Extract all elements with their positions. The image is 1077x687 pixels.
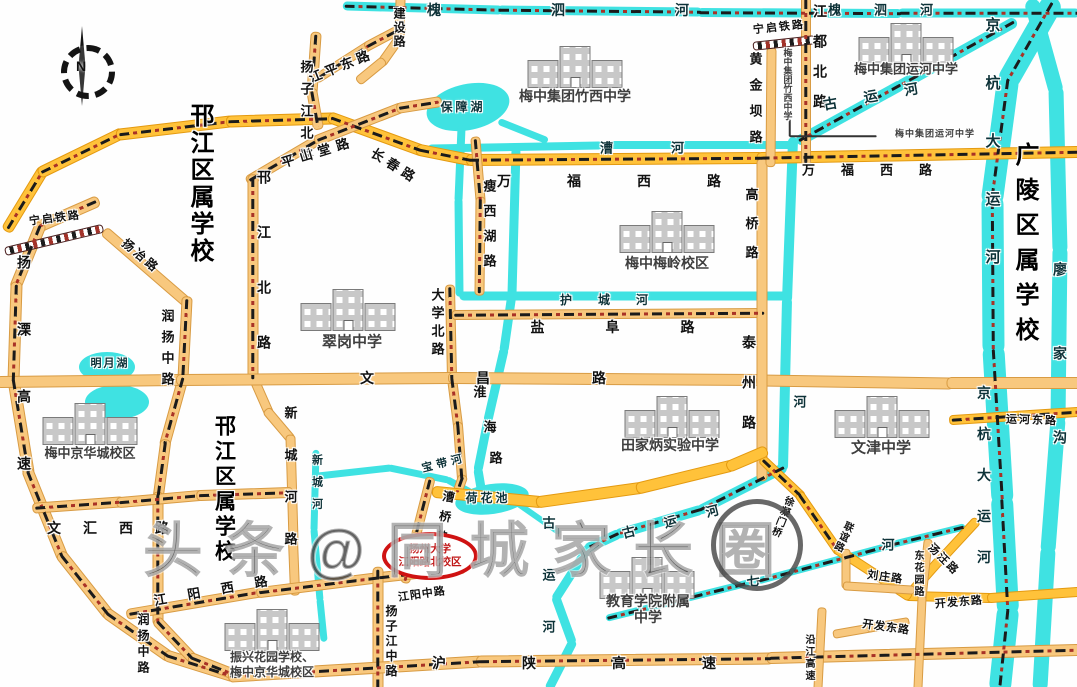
watermark-circle-icon bbox=[711, 499, 803, 591]
school-icon-yunhe bbox=[859, 23, 954, 65]
road-label-yanjiang: 沿江高速 bbox=[803, 634, 813, 682]
donghuayuan-road bbox=[913, 595, 926, 687]
compass-north-label: N bbox=[76, 58, 86, 74]
region-label-guangling: 广陵区属学校 bbox=[1012, 142, 1036, 352]
road-label-gaoqiao: 高桥路 bbox=[745, 188, 758, 275]
school-tower bbox=[891, 23, 922, 65]
school-label-jinghuacheng: 梅中京华城校区 bbox=[44, 447, 135, 460]
school-tower bbox=[652, 211, 683, 253]
wenchang-road bbox=[756, 374, 954, 389]
road-label-yangzijiangzhong: 扬子江中路 bbox=[385, 605, 397, 680]
school-wing-left bbox=[43, 417, 74, 445]
region-label-hanjiang-1: 邗江区属学校 bbox=[187, 103, 211, 265]
road-label-wenchang: 文昌路 bbox=[360, 371, 708, 385]
lake-label-baozhang: 保障湖 bbox=[440, 101, 485, 113]
road-label-kaifadong-e: 开发东路 bbox=[935, 595, 984, 610]
school-wing-right bbox=[107, 417, 138, 445]
school-tower bbox=[560, 46, 591, 88]
school-tower bbox=[867, 396, 898, 438]
huangjinba-road bbox=[765, 47, 776, 167]
yangzhou-school-district-map: N 扬州大学 江阳路北校区 头条@同城家长圈 邗江区属学校邗江区属学校广陵区属学… bbox=[0, 0, 1077, 687]
shouxihu-water-east bbox=[507, 147, 520, 297]
road-label-donghuayuan: 东花园路 bbox=[912, 550, 922, 598]
river-label-qilihe-2: 河 bbox=[881, 539, 894, 552]
school-label-yunhe-small: 梅中集团运河中学 bbox=[895, 130, 975, 139]
river-label-guyunhe-n: 河 bbox=[793, 396, 806, 409]
river-label-guyunhe-ne: 古运河 bbox=[822, 76, 946, 111]
liaojiagou-river bbox=[1032, 545, 1055, 687]
road-label-daxuebei: 大学北路 bbox=[431, 288, 444, 360]
school-label-wenjin: 文津中学 bbox=[851, 441, 911, 456]
river-label-huaisi-2: 槐泗河 bbox=[828, 4, 966, 17]
baozhanghu-outlet bbox=[497, 118, 548, 144]
lake-label-mingyue: 明月湖 bbox=[91, 359, 130, 370]
school-wing-left bbox=[225, 623, 256, 651]
school-tower bbox=[75, 403, 106, 445]
liaojiagou-river bbox=[1048, 85, 1067, 254]
river-label-jinghang-1: 京杭大运河 bbox=[985, 17, 1000, 307]
school-icon-meiling bbox=[620, 211, 715, 253]
road-label-runyangzhong-1: 润扬中路 bbox=[161, 309, 174, 393]
school-label-cuigang: 翠岗中学 bbox=[322, 335, 382, 350]
school-wing-left bbox=[528, 60, 559, 88]
school-wing-left bbox=[301, 303, 332, 331]
school-label-tianjiabing: 田家炳实验中学 bbox=[621, 438, 719, 452]
road-label-yunhedong: 运河东路 bbox=[1006, 415, 1058, 428]
school-wing-left bbox=[625, 410, 656, 438]
school-label-meiling: 梅中梅岭校区 bbox=[625, 256, 709, 270]
river-label-caohe: 漕河 bbox=[600, 142, 742, 155]
school-wing-right bbox=[592, 60, 623, 88]
ningqi-railway-west bbox=[4, 224, 104, 256]
changchun-wanfuxi-road-boundary bbox=[41, 132, 122, 173]
school-label-zhenxing-2: 梅中京华城校区 bbox=[230, 666, 314, 678]
school-wing-right bbox=[365, 303, 396, 331]
river-label-liaojiagou: 廖家沟 bbox=[1053, 262, 1067, 514]
school-wing-right bbox=[899, 410, 930, 438]
school-label-zhuxi-small: 梅中集团竹西中学 bbox=[783, 48, 792, 120]
school-label-jiaoyuxueyuan-2: 中学 bbox=[634, 610, 662, 624]
road-label-wanfuxi-e: 万福西路 bbox=[802, 164, 958, 177]
river-label-hucheng: 护城河 bbox=[560, 294, 674, 306]
road-label-shouxihu: 瘦西湖路 bbox=[483, 179, 496, 279]
school-tower bbox=[333, 289, 364, 331]
leader-line bbox=[790, 135, 877, 137]
road-label-wanfuxi-w: 万福西路 bbox=[497, 174, 777, 188]
school-icon-tianjiabing bbox=[625, 396, 720, 438]
road-label-huaihai-1: 淮 bbox=[473, 386, 486, 399]
school-label-yunhe: 梅中集团运河中学 bbox=[854, 63, 958, 76]
road-label-yanfu: 盐阜路 bbox=[531, 320, 756, 334]
school-wing-right bbox=[289, 623, 320, 651]
nantong-road bbox=[635, 459, 736, 495]
school-icon-zhuxi bbox=[528, 46, 623, 88]
road-label-taizhou: 泰州路 bbox=[742, 335, 756, 455]
school-label-zhuxi: 梅中集团竹西中学 bbox=[519, 89, 631, 103]
school-tower bbox=[257, 609, 288, 651]
school-wing-right bbox=[684, 225, 715, 253]
road-label-huaihai-2: 海 bbox=[483, 421, 496, 434]
liuzhuang-road bbox=[843, 581, 916, 594]
baodai-river bbox=[316, 464, 393, 479]
yangli-expressway-boundary bbox=[27, 471, 64, 557]
shouxihu-water-west bbox=[454, 198, 463, 297]
road-label-yangli: 扬溧高速 bbox=[17, 255, 31, 523]
road-label-jianshe: 建设路 bbox=[393, 7, 405, 49]
leader-line bbox=[789, 120, 791, 137]
school-label-zhenxing-1: 振兴花园学校、 bbox=[230, 651, 314, 663]
compass-ring-icon bbox=[61, 45, 115, 99]
hanjiangbei-road-boundary bbox=[252, 177, 255, 379]
school-tower bbox=[657, 396, 688, 438]
school-label-jiaoyuxueyuan-1: 教育学院附属 bbox=[606, 594, 690, 608]
river-label-jinghang-2: 京杭大运河 bbox=[977, 386, 991, 591]
school-wing-left bbox=[835, 410, 866, 438]
road-label-huangjinba: 黄金坝路 bbox=[749, 52, 762, 156]
school-wing-right bbox=[689, 410, 720, 438]
school-icon-wenjin bbox=[835, 396, 930, 438]
watermark: 头条@同城家长圈 bbox=[143, 503, 798, 590]
school-icon-jinghuacheng bbox=[43, 403, 138, 445]
road-label-hanjiangbei: 邗江北路 bbox=[257, 170, 271, 390]
road-label-hushan: 沪陕高速 bbox=[432, 656, 792, 670]
yanjiang-expressway bbox=[813, 607, 826, 687]
yangli-expressway-boundary bbox=[61, 555, 110, 616]
road-label-huaihai-3: 路 bbox=[489, 452, 502, 465]
road-label-runyangzhong-2: 润扬中路 bbox=[137, 613, 149, 677]
school-icon-cuigang bbox=[301, 289, 396, 331]
rail-label-ningqi-ne: 宁启铁路 bbox=[753, 20, 806, 36]
school-wing-left bbox=[620, 225, 651, 253]
school-icon-zhenxing bbox=[225, 609, 320, 651]
river-label-huaisi-1: 槐泗河 bbox=[427, 3, 799, 17]
